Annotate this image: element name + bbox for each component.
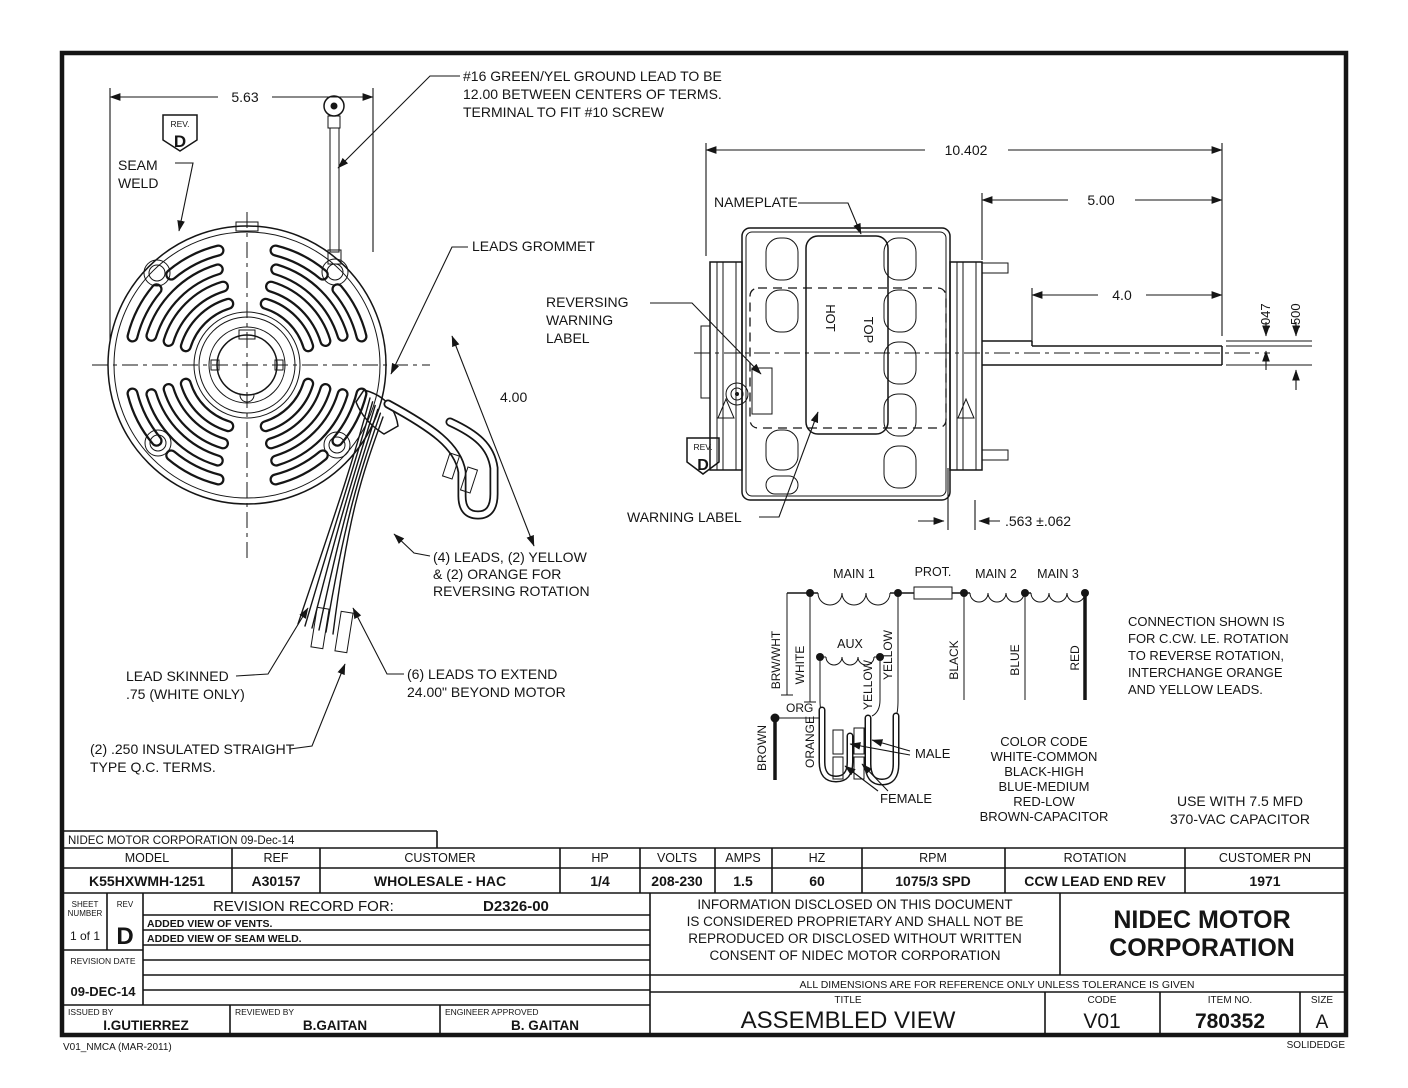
- six-leads-1: (6) LEADS TO EXTEND: [407, 666, 557, 682]
- main2-label: MAIN 2: [975, 567, 1017, 581]
- color-code-1: WHITE-COMMON: [991, 749, 1098, 764]
- value-customer-pn: 1971: [1249, 873, 1280, 889]
- dim-10-402-text: 10.402: [945, 142, 988, 158]
- value-customer: WHOLESALE - HAC: [374, 873, 506, 889]
- sheet-label-1: SHEET: [72, 900, 99, 909]
- header-ref: REF: [264, 851, 289, 865]
- header-hz: HZ: [809, 851, 826, 865]
- yellow-label-1: YELLOW: [861, 659, 875, 710]
- connection-4: AND YELLOW LEADS.: [1128, 682, 1263, 697]
- size-value: A: [1316, 1012, 1329, 1033]
- rev-caption-2: REV.: [693, 442, 712, 452]
- header-volts: VOLTS: [657, 851, 697, 865]
- dim-4-00-text: 4.00: [500, 389, 527, 405]
- nameplate-hot-text: HOT: [823, 304, 838, 332]
- connection-1: FOR C.CW. LE. ROTATION: [1128, 631, 1289, 646]
- rev-caption: REV.: [170, 119, 189, 129]
- lead-skinned-2: .75 (WHITE ONLY): [126, 686, 245, 702]
- blue-label: BLUE: [1008, 644, 1022, 675]
- footer-template-id: V01_NMCA (MAR-2011): [63, 1042, 172, 1053]
- nameplate-top-text: TOP: [861, 317, 876, 344]
- seam-weld-label-1: SEAM: [118, 157, 158, 173]
- issued-by-value: I.GUTIERREZ: [103, 1018, 189, 1033]
- rev-letter: D: [174, 132, 186, 151]
- color-code-2: BLACK-HIGH: [1004, 764, 1083, 779]
- size-label: SIZE: [1311, 995, 1334, 1006]
- ground-note-2: 12.00 BETWEEN CENTERS OF TERMS.: [463, 86, 722, 102]
- tolerance-note: ALL DIMENSIONS ARE FOR REFERENCE ONLY UN…: [799, 979, 1194, 991]
- qc-terms-2: TYPE Q.C. TERMS.: [90, 759, 216, 775]
- header-amps: AMPS: [725, 851, 760, 865]
- title-value: ASSEMBLED VIEW: [741, 1007, 956, 1034]
- red-label: RED: [1068, 645, 1082, 671]
- spec-values: K55HXWMH-1251 A30157 WHOLESALE - HAC 1/4…: [89, 873, 1281, 889]
- reviewed-by-value: B.GAITAN: [303, 1018, 367, 1033]
- connection-2: TO REVERSE ROTATION,: [1128, 648, 1284, 663]
- rev-letter-2: D: [697, 457, 709, 474]
- value-rotation: CCW LEAD END REV: [1024, 873, 1166, 889]
- four-leads-2: & (2) ORANGE FOR: [433, 566, 561, 582]
- proprietary-4: CONSENT OF NIDEC MOTOR CORPORATION: [709, 948, 1000, 963]
- header-hp: HP: [591, 851, 608, 865]
- dim-047-text: .047: [1258, 303, 1273, 328]
- header-model: MODEL: [125, 851, 170, 865]
- brwwht-label: BRW/WHT: [769, 630, 783, 689]
- proprietary-2: IS CONSIDERED PROPRIETARY AND SHALL NOT …: [687, 914, 1024, 929]
- rev-label: REV: [117, 900, 134, 909]
- reversing-label-2: WARNING: [546, 312, 613, 328]
- header-rotation: ROTATION: [1064, 851, 1127, 865]
- header-customer-pn: CUSTOMER PN: [1219, 851, 1311, 865]
- ground-note-3: TERMINAL TO FIT #10 SCREW: [463, 104, 665, 120]
- connection-0: CONNECTION SHOWN IS: [1128, 614, 1285, 629]
- rev-value: D: [116, 923, 133, 950]
- company-name-1: NIDEC MOTOR: [1113, 906, 1290, 934]
- dim-5-00-text: 5.00: [1087, 192, 1114, 208]
- orange-label: ORANGE: [803, 716, 817, 768]
- revision-entry-1: ADDED VIEW OF VENTS.: [147, 918, 273, 930]
- capacitor-1: 370-VAC CAPACITOR: [1170, 811, 1310, 827]
- lead-skinned-1: LEAD SKINNED: [126, 668, 229, 684]
- header-customer: CUSTOMER: [404, 851, 475, 865]
- capacitor-0: USE WITH 7.5 MFD: [1177, 793, 1303, 809]
- engineering-drawing-page: REV. D 5.63 4.00: [0, 0, 1408, 1088]
- male-label: MALE: [915, 746, 951, 761]
- main1-label: MAIN 1: [833, 567, 875, 581]
- value-hz: 60: [809, 873, 825, 889]
- yellow-label-2: YELLOW: [881, 629, 895, 680]
- revision-date-label: REVISION DATE: [70, 956, 135, 966]
- brown-label: BROWN: [755, 725, 769, 771]
- engineer-approved-value: B. GAITAN: [511, 1018, 579, 1033]
- prot-label: PROT.: [915, 565, 952, 579]
- white-label: WHITE: [793, 646, 807, 685]
- value-volts: 208-230: [651, 873, 703, 889]
- issued-by-label: ISSUED BY: [68, 1007, 114, 1017]
- value-hp: 1/4: [590, 873, 610, 889]
- value-model: K55HXWMH-1251: [89, 873, 205, 889]
- item-no-label: ITEM NO.: [1208, 995, 1252, 1006]
- reviewed-by-label: REVIEWED BY: [235, 1007, 294, 1017]
- main3-label: MAIN 3: [1037, 567, 1079, 581]
- code-value: V01: [1083, 1010, 1120, 1033]
- color-code-4: RED-LOW: [1013, 794, 1075, 809]
- color-code-5: BROWN-CAPACITOR: [980, 809, 1109, 824]
- revision-record-label: REVISION RECORD FOR:: [213, 898, 394, 915]
- proprietary-1: INFORMATION DISCLOSED ON THIS DOCUMENT: [697, 897, 1012, 912]
- qc-terms-1: (2) .250 INSULATED STRAIGHT: [90, 741, 295, 757]
- reversing-label-1: REVERSING: [546, 294, 628, 310]
- code-label: CODE: [1088, 995, 1117, 1006]
- title-label: TITLE: [834, 995, 862, 1006]
- dim-5-63-text: 5.63: [231, 89, 258, 105]
- value-amps: 1.5: [733, 873, 753, 889]
- dim-500-text: .500: [1288, 303, 1303, 328]
- item-no-value: 780352: [1195, 1010, 1265, 1033]
- leads-grommet-label: LEADS GROMMET: [472, 238, 595, 254]
- warning-label-text: WARNING LABEL: [627, 509, 742, 525]
- six-leads-2: 24.00" BEYOND MOTOR: [407, 684, 566, 700]
- aux-label: AUX: [837, 637, 863, 651]
- value-ref: A30157: [251, 873, 300, 889]
- revision-entry-2: ADDED VIEW OF SEAM WELD.: [147, 933, 302, 945]
- connection-3: INTERCHANGE ORANGE: [1128, 665, 1283, 680]
- dim-4-0-text: 4.0: [1112, 287, 1132, 303]
- engineer-approved-label: ENGINEER APPROVED: [445, 1007, 539, 1017]
- ground-note-1: #16 GREEN/YEL GROUND LEAD TO BE: [463, 68, 722, 84]
- drawing-note: NIDEC MOTOR CORPORATION 09-Dec-14: [68, 835, 295, 847]
- value-rpm: 1075/3 SPD: [895, 873, 971, 889]
- female-label: FEMALE: [880, 791, 932, 806]
- dim-563-text: .563 ±.062: [1005, 513, 1071, 529]
- reversing-label-3: LABEL: [546, 330, 590, 346]
- company-name-2: CORPORATION: [1109, 934, 1295, 962]
- org-label: ORG: [786, 701, 813, 715]
- color-code-3: BLUE-MEDIUM: [998, 779, 1089, 794]
- black-label: BLACK: [947, 640, 961, 679]
- proprietary-3: REPRODUCED OR DISCLOSED WITHOUT WRITTEN: [688, 931, 1022, 946]
- color-code-0: COLOR CODE: [1000, 734, 1088, 749]
- revision-record-number: D2326-00: [483, 898, 549, 915]
- nameplate-label: NAMEPLATE: [714, 194, 798, 210]
- sheet-label-2: NUMBER: [68, 909, 103, 918]
- sheet-value: 1 of 1: [70, 929, 100, 943]
- revision-date-value: 09-DEC-14: [70, 984, 136, 999]
- header-rpm: RPM: [919, 851, 947, 865]
- four-leads-1: (4) LEADS, (2) YELLOW: [433, 549, 588, 565]
- drawing-canvas: REV. D 5.63 4.00: [0, 0, 1408, 1088]
- footer-cad-id: SOLIDEDGE: [1287, 1040, 1346, 1051]
- four-leads-3: REVERSING ROTATION: [433, 583, 590, 599]
- seam-weld-label-2: WELD: [118, 175, 158, 191]
